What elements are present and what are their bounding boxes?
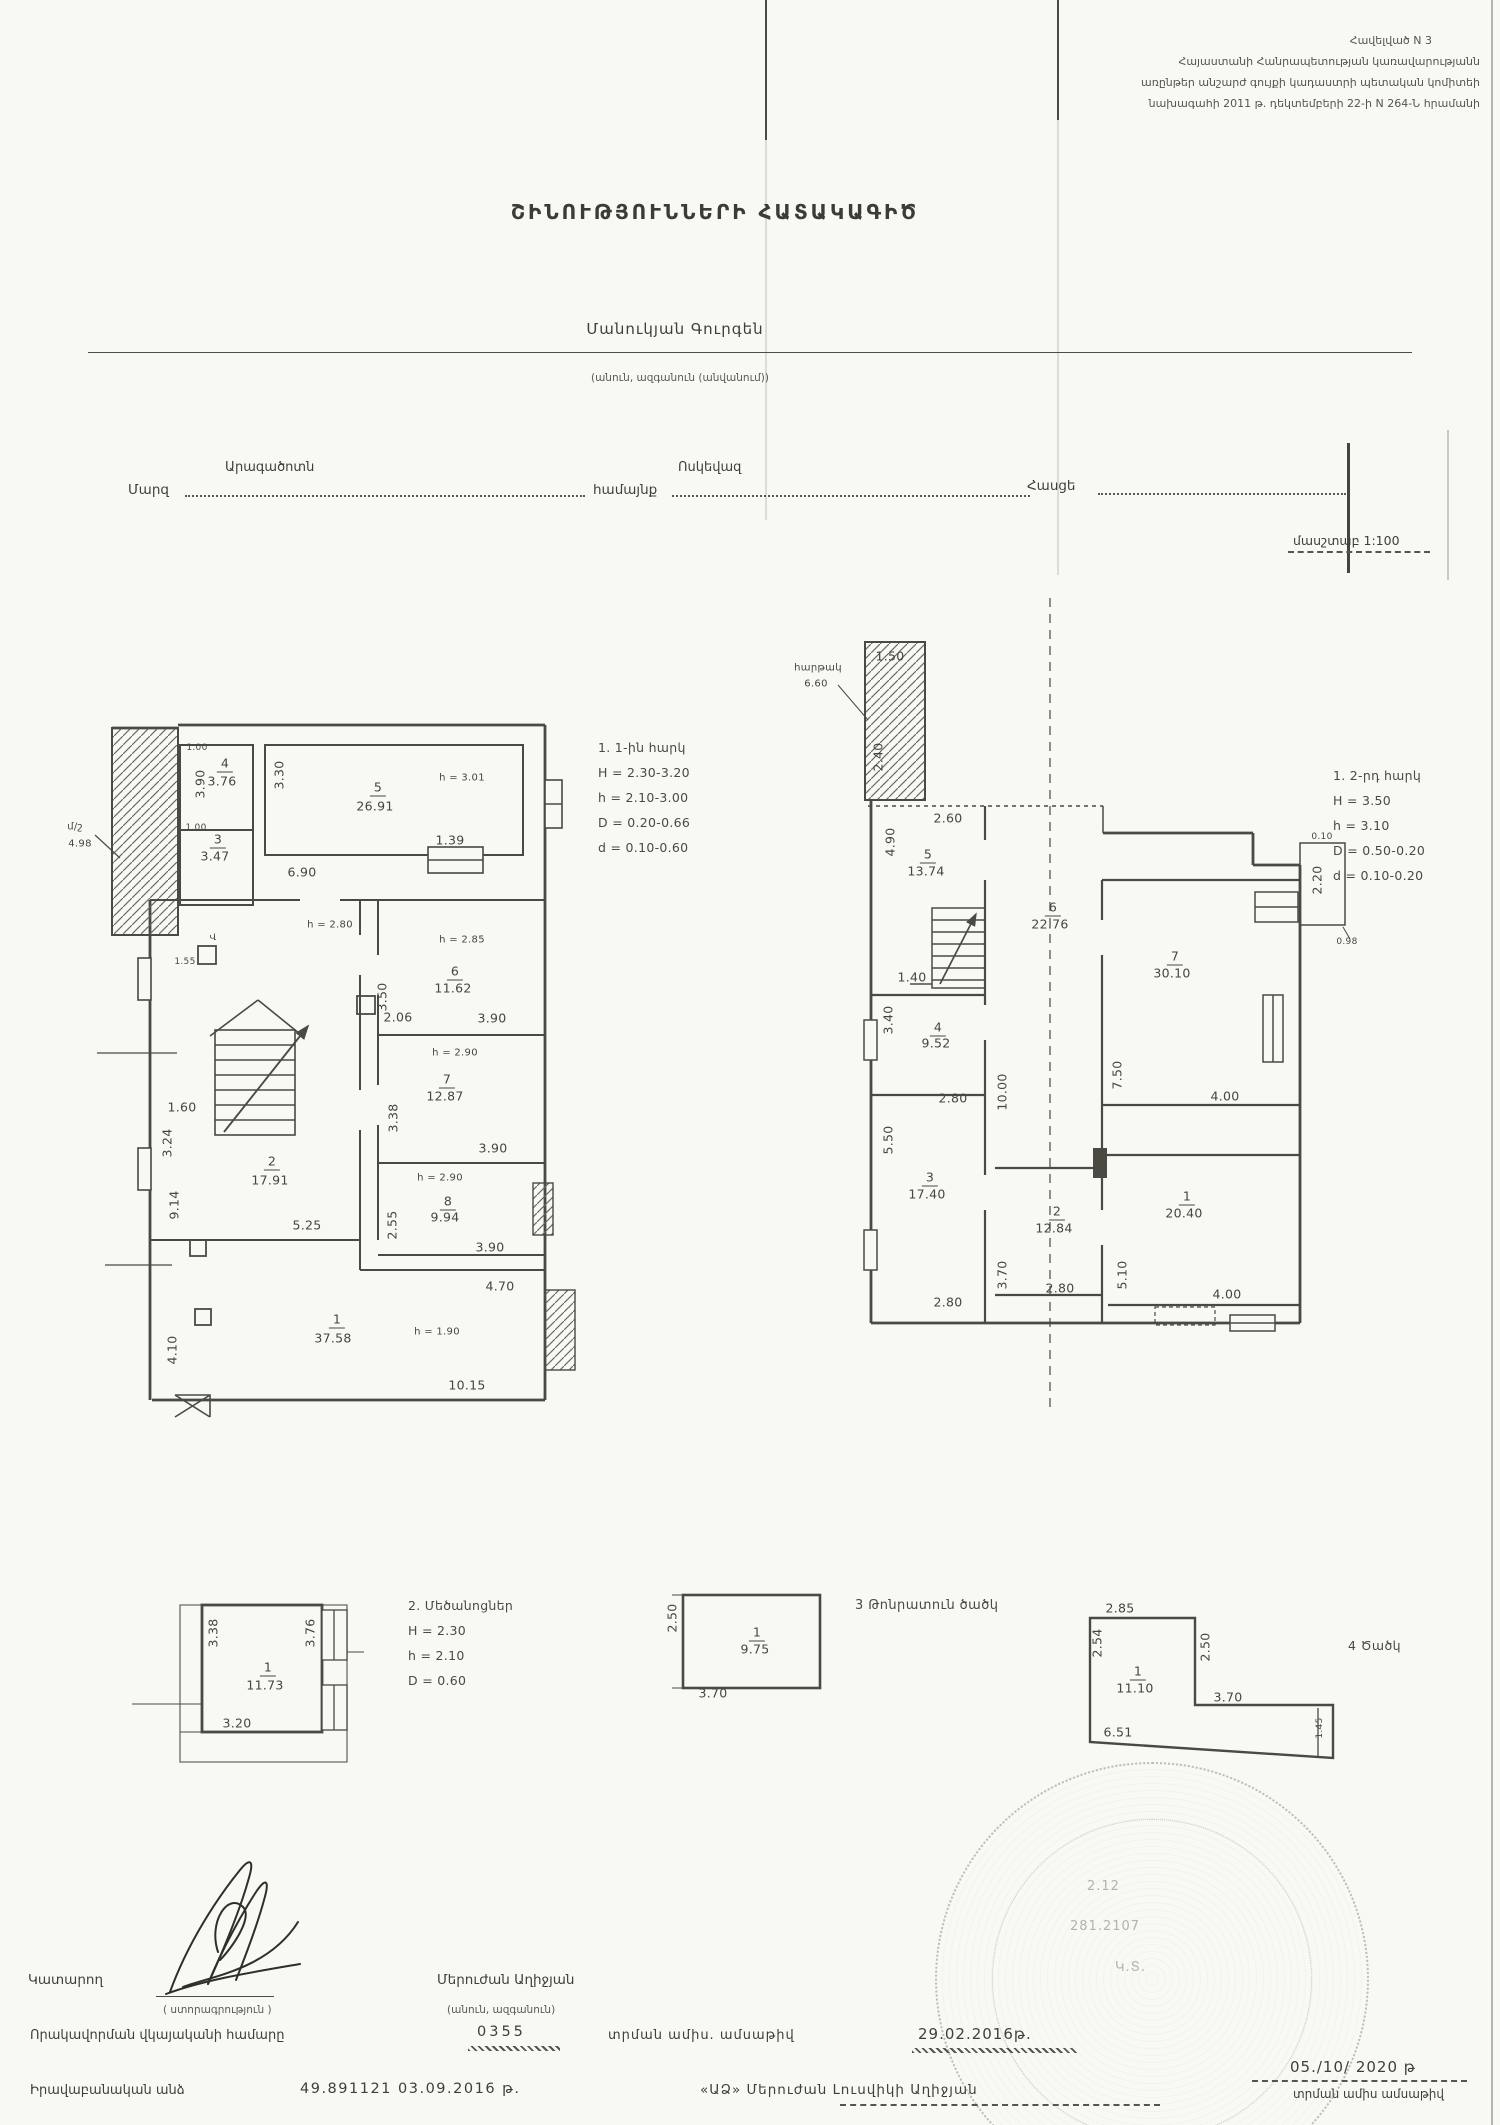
note-line: առընթեր անշարժ գույքի կադաստրի պետական կ… [880,72,1480,93]
dimension-label: 11.10 [1116,1681,1153,1696]
dimension-label: 3.76 [303,1618,318,1647]
note-line: h = 3.10 [1333,813,1425,838]
dimension-label: 2 [1049,1204,1065,1221]
note-line: 2. Մեծանոցներ [408,1593,513,1618]
canopy-plan: 2.852.542.50111.103.706.511.45 [1080,1580,1360,1780]
stamp-number: 281.2107 [1070,1919,1140,1934]
dimension-label: 13.74 [907,864,944,879]
dimension-label: 6 [447,964,463,981]
stamp-number: 2.12 [1087,1879,1120,1894]
dimension-label: 3 [210,832,226,849]
dimension-label: 9.14 [167,1190,182,1219]
dimension-label: հարթակ [794,663,842,674]
dimension-label: 2.80 [933,1295,962,1310]
signature-caption: ( ստորագրություն ) [163,2004,272,2016]
dimension-label: h = 2.90 [432,1048,478,1059]
first-floor-notes: 1. 1-ին հարկH = 2.30-3.20h = 2.10-3.00D … [598,735,690,860]
note-line: d = 0.10-0.60 [598,835,690,860]
dimension-label: 7 [1167,949,1183,966]
legal-entity-number: 49.891121 03.09.2016 թ. [300,2081,520,2097]
executor-name: Մերուժան Աղիջյան [437,1972,575,1988]
second-floor-plan: հարթակ6.601.502.402.604.90513.741.403.40… [790,590,1360,1420]
stamp-date: 05./10/ 2020 թ [1290,2058,1416,2076]
dimension-label: 1.45 [1315,1717,1325,1738]
dimension-label: 1.40 [897,970,926,985]
dimension-label: 1 [1179,1189,1195,1206]
dimension-label: 6.90 [287,865,316,880]
note-line: Հավելված N 3 [880,30,1480,51]
dimension-label: մ/շ [67,822,83,833]
dimension-label: 4.10 [165,1335,180,1364]
dimension-label: h = 2.85 [439,935,485,946]
dimension-label: 5.10 [1115,1260,1130,1289]
dimension-label: 3.38 [386,1103,401,1132]
dimension-label: 3.70 [698,1686,727,1701]
dimension-label: 2.40 [871,742,886,771]
dimension-label: 5.25 [292,1218,321,1233]
dimension-label: 5 [920,847,936,864]
dimension-label: 1.39 [435,833,464,848]
dimension-label: 4.70 [485,1279,514,1294]
dimension-label: 17.91 [251,1173,288,1188]
dimension-label: h = 2.80 [307,920,353,931]
dimension-label: 1.00 [186,743,207,753]
note-line: 1. 2-րդ հարկ [1333,763,1425,788]
community-value: Ոսկեվազ [678,460,741,475]
issue-date: 29.02.2016թ. [918,2025,1032,2043]
dimension-label: 2.50 [665,1603,680,1632]
dimension-label: 6 [1045,900,1061,917]
community-label: համայնք [593,482,657,498]
fold-line [1057,120,1059,575]
dimension-label: 3.90 [477,1011,506,1026]
region-value: Արագածոտն [225,460,314,475]
performer-label: Կատարող [28,1972,103,1988]
dimension-label: 2.20 [1310,865,1325,894]
dimension-label: 3.47 [200,849,229,864]
dimension-label: 3.90 [475,1240,504,1255]
address-label: Հասցե [1027,478,1075,494]
dimension-label: 2 [264,1154,280,1171]
dimension-label: 3.30 [272,760,287,789]
fold-line [765,0,767,140]
dimension-label: 6.51 [1103,1725,1132,1740]
scanned-floor-plan-document: Հավելված N 3Հայաստանի Հանրապետության կառ… [0,0,1500,2125]
dimension-label: 4.98 [68,839,91,850]
dimension-label: 3.50 [375,982,390,1011]
dimension-label: h = 1.90 [414,1327,460,1338]
dimension-label: 4.00 [1212,1287,1241,1302]
dimension-label: h = 2.90 [417,1173,463,1184]
page-edge-shadow [1491,0,1493,2125]
region-label: Մարզ [128,482,169,498]
address-dotted-line [1098,493,1346,495]
dimension-label: 0.98 [1336,937,1357,947]
dimension-label: 2.54 [1090,1628,1105,1657]
dimension-label: 3.38 [206,1618,221,1647]
dimension-label: 5 [370,780,386,797]
note-line: 1. 1-ին հարկ [598,735,690,760]
dimension-label: 1 [1130,1664,1146,1681]
signature-line [156,1996,274,1997]
dimension-label: 3.70 [995,1260,1010,1289]
canopy-caption: 4 Ծածկ [1348,1638,1401,1653]
legal-entity-underline [840,2104,1160,2106]
certificate-label: Որակավորման վկայականի համարը [30,2028,284,2043]
dimension-label: 30.10 [1153,966,1190,981]
tonir-plan: 2.5019.753.70 [660,1580,840,1710]
note-line: h = 2.10-3.00 [598,785,690,810]
signature-scribble [148,1852,318,2002]
appendix-header: Հավելված N 3Հայաստանի Հանրապետության կառ… [880,30,1480,114]
note-line: H = 2.30 [408,1618,513,1643]
fold-line [1347,443,1350,573]
dimension-label: 3.40 [881,1005,896,1034]
first-floor-plan: մ/շ4.981.003.9043.761.0033.473.30526.91h… [60,700,580,1420]
stamp-date-underline [1252,2080,1467,2082]
dimension-label: 3.70 [1213,1690,1242,1705]
dimension-label: 9.75 [740,1642,769,1657]
note-line: h = 2.10 [408,1643,513,1668]
dimension-label: 9.52 [921,1036,950,1051]
note-line: d = 0.10-0.20 [1333,863,1425,888]
issue-label: տրման ամիս. ամսաթիվ [608,2028,795,2043]
note-line: D = 0.50-0.20 [1333,838,1425,863]
owner-underline [88,352,1412,353]
issue-date-underline [912,2048,1077,2053]
note-line: նախագահի 2011 թ. դեկտեմբերի 22-ի N 264-Ն… [880,93,1480,114]
dimension-label: h = 3.01 [439,773,485,784]
dimension-label: 3 [922,1170,938,1187]
dimension-label: 22.76 [1031,917,1068,932]
outbuilding-notes: 2. ՄեծանոցներH = 2.30h = 2.10D = 0.60 [408,1593,513,1693]
dimension-label: 26.91 [356,799,393,814]
dimension-label: 1.60 [167,1100,196,1115]
dimension-label: 4 [930,1020,946,1037]
dimension-label: 2.50 [1198,1632,1213,1661]
dimension-label: 1 [260,1660,276,1677]
outbuilding-plan: 3.383.76111.733.20 [130,1580,370,1780]
dimension-label: 7 [439,1072,455,1089]
stamp-date-caption: տրման ամիս ամսաթիվ [1293,2087,1444,2101]
dimension-label: 7.50 [1110,1060,1125,1089]
dimension-label: 3.90 [478,1141,507,1156]
dimension-label: 4.90 [883,827,898,856]
legal-entity-label: Իրավաբանական անձ [30,2083,185,2098]
owner-caption: (անուն, ազգանուն (անվանում)) [540,372,820,384]
region-dotted-line [185,495,585,497]
dimension-label: 3.76 [207,774,236,789]
owner-name: Մանուկյան Գուրգեն [500,320,850,338]
note-line: H = 3.50 [1333,788,1425,813]
dimension-label: 11.73 [246,1678,283,1693]
dimension-label: 12.87 [426,1089,463,1104]
dimension-label: 1.50 [875,649,904,664]
dimension-label: 5.50 [881,1125,896,1154]
second-floor-notes: 1. 2-րդ հարկH = 3.50h = 3.10D = 0.50-0.2… [1333,763,1425,888]
dimension-label: 2.60 [933,811,962,826]
dimension-label: 3.24 [160,1128,175,1157]
note-line: D = 0.60 [408,1668,513,1693]
note-line: H = 2.30-3.20 [598,760,690,785]
dimension-label: 9.94 [430,1210,459,1225]
dimension-label: 11.62 [434,981,471,996]
dimension-label: 10.00 [995,1073,1010,1110]
dimension-label: 4 [217,756,233,773]
dimension-label: 12.84 [1035,1221,1072,1236]
certificate-number: 0355 [477,2024,526,2040]
dimension-label: 8 [440,1194,456,1211]
dimension-label: 2.55 [385,1210,400,1239]
dimension-label: 4.00 [1210,1089,1239,1104]
fold-line [1447,430,1449,580]
note-line: Հայաստանի Հանրապետության կառավարությանն [880,51,1480,72]
dimension-label: 3.90 [193,769,208,798]
executor-caption: (անուն, ազգանուն) [447,2004,555,2016]
page-title: ՇԻՆՈՒԹՅՈՒՆՆԵՐԻ ՀԱՏԱԿԱԳԻԾ [440,200,990,224]
note-line: D = 0.20-0.66 [598,810,690,835]
community-dotted-line [672,495,1030,497]
scale-underline [1288,551,1430,553]
dimension-label: 6.60 [804,679,827,690]
dimension-label: 0.10 [1311,832,1332,842]
scale-note: մասշտաբ 1:100 [1293,533,1400,548]
dimension-label: 10.15 [448,1378,485,1393]
dimension-label: 3.20 [222,1716,251,1731]
tonir-caption: 3 Թոնրատուն ծածկ [855,1598,998,1613]
dimension-label: 2.85 [1105,1601,1134,1616]
dimension-label: 17.40 [908,1187,945,1202]
dimension-label: 2.80 [1045,1281,1074,1296]
stamp-initials: Կ.Տ. [1115,1960,1146,1975]
dimension-label: 1.55 [174,957,195,967]
dimension-label: 2.80 [938,1091,967,1106]
dimension-label: 37.58 [314,1331,351,1346]
dimension-label: 20.40 [1165,1206,1202,1221]
dimension-label: 2.06 [383,1010,412,1025]
dimension-label: Վ [209,933,216,943]
dimension-label: 1 [329,1312,345,1329]
dimension-label: 1 [749,1625,765,1642]
legal-entity-name: «ԱՁ» Մերուժան Լուսվիկի Աղիջյան [700,2082,978,2098]
dimension-label: 1.00 [185,823,206,833]
certificate-number-underline [468,2046,560,2051]
